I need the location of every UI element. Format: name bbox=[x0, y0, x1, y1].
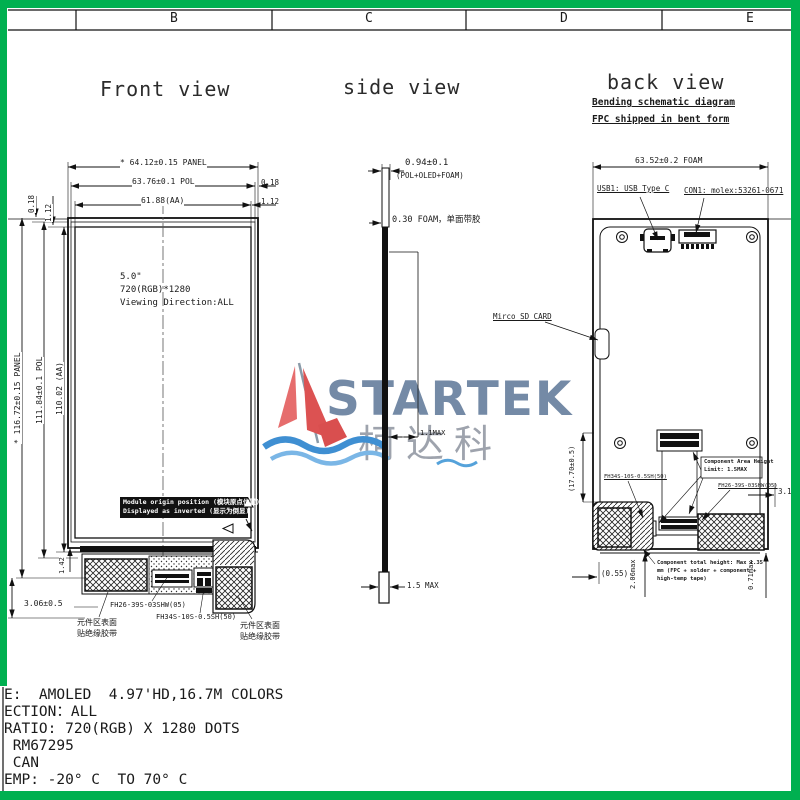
sd-card-label: Mirco SD CARD bbox=[493, 313, 552, 321]
sheet-border-bottom bbox=[0, 791, 800, 800]
component-area-note-line2: Limit: 1.5MAX bbox=[704, 467, 747, 473]
origin-note-line1: Module origin position (模块原点位置) bbox=[123, 499, 260, 506]
con1-connector-label: CON1: molex:53261-0671 bbox=[684, 187, 783, 195]
front-view-graphic bbox=[8, 162, 276, 619]
component-area-note-line1: Component Area Height bbox=[704, 459, 774, 465]
header-grid bbox=[8, 10, 792, 30]
front-dim-aa-width: 61.88(AA) bbox=[141, 197, 184, 206]
column-header-d: D bbox=[560, 12, 568, 26]
column-header-e: E bbox=[746, 12, 754, 26]
front-gap-right-aa: 1.12 bbox=[261, 198, 279, 206]
back-fh26-label: FH26-39S-03SHW(05) bbox=[718, 483, 778, 489]
side-view-title: side view bbox=[343, 76, 460, 98]
back-dim-side: (17.70±0.5) bbox=[569, 446, 576, 492]
back-view-graphic bbox=[545, 162, 775, 598]
side-dim-stack-sub: (POL+OLED+FOAM) bbox=[396, 172, 464, 180]
spec-line-ratio: RATIO: 720(RGB) X 1280 DOTS bbox=[4, 722, 240, 738]
tape-note-right-line1: 元件区表面 bbox=[240, 622, 280, 631]
back-dim-foam-width: 63.52±0.2 FOAM bbox=[635, 157, 702, 166]
front-dim-panel-width: * 64.12±0.15 PANEL bbox=[120, 159, 207, 168]
column-header-b: B bbox=[170, 12, 178, 26]
display-resolution-label: 720(RGB)*1280 bbox=[120, 284, 190, 297]
front-gap-right-pol: 0.18 bbox=[261, 179, 279, 187]
sheet-border-right bbox=[791, 0, 800, 800]
front-dim-pol-width: 63.76±0.1 POL bbox=[132, 178, 195, 187]
tape-note-left-line2: 贴绝缘胶带 bbox=[77, 630, 117, 639]
sheet-border-left bbox=[0, 0, 7, 686]
side-dim-stack: 0.94±0.1 bbox=[405, 159, 448, 169]
front-dim-tail: 3.06±0.5 bbox=[24, 600, 63, 609]
component-height-note-line1: Component total height: Max 1.35 bbox=[657, 560, 763, 566]
usb-connector-label: USB1: USB Type C bbox=[597, 185, 669, 193]
component-height-note-line2: mm (FPC + solder + component + bbox=[657, 568, 756, 574]
display-size-label: 5.0" bbox=[120, 271, 142, 284]
front-gap-left-pol: 0.18 bbox=[28, 195, 36, 213]
side-dim-mid-max: 1.1MAX bbox=[420, 430, 445, 438]
front-connector2-label: FH34S-10S-0.5SH(50) bbox=[156, 614, 236, 622]
front-dim-ledge: 1.42 bbox=[59, 557, 66, 574]
back-view-subtitle-bending: Bending schematic diagram bbox=[592, 98, 735, 108]
front-gap-left-aa: 1.12 bbox=[45, 204, 53, 222]
viewing-direction-label: Viewing Direction:ALL bbox=[120, 297, 234, 310]
back-fh34-label: FH34S-10S-0.5SH(50) bbox=[604, 474, 667, 480]
drawing-sheet: STARTEK 柯达科 bbox=[0, 0, 800, 800]
back-view-subtitle-fpc: FPC shipped in bent form bbox=[592, 115, 729, 125]
tape-note-left-line1: 元件区表面 bbox=[77, 619, 117, 628]
watermark-logo-graphic bbox=[264, 363, 477, 466]
spec-line-type: E: AMOLED 4.97'HD,16.7M COLORS bbox=[4, 688, 283, 704]
back-view-title: back view bbox=[607, 71, 724, 93]
column-header-c: C bbox=[365, 12, 373, 26]
sheet-border-top bbox=[0, 0, 800, 8]
back-dim-206max: 2.06max bbox=[630, 559, 637, 589]
side-view-graphic bbox=[361, 164, 418, 603]
front-dim-panel-height: * 116.72±0.15 PANEL bbox=[14, 352, 22, 444]
side-dim-bottom-max: 1.5 MAX bbox=[407, 582, 439, 590]
spec-line-temp: EMP: -20° C TO 70° C bbox=[4, 773, 187, 789]
origin-note-line2: Displayed as inverted (显示为倒显) bbox=[123, 508, 249, 515]
front-dim-aa-height: 110.02 (AA) bbox=[56, 362, 64, 415]
component-height-note-line3: high-temp tape) bbox=[657, 576, 707, 582]
side-foam-note: 0.30 FOAM，单面带胶 bbox=[392, 216, 481, 225]
spec-line-interface: CAN bbox=[4, 756, 39, 772]
back-dim-055: (0.55) bbox=[601, 570, 628, 578]
front-view-title: Front view bbox=[100, 78, 230, 100]
front-connector1-label: FH26-39S-03SHW(05) bbox=[110, 602, 186, 610]
front-dim-pol-height: 111.84±0.1 POL bbox=[36, 357, 44, 424]
spec-line-driver: RM67295 bbox=[4, 739, 74, 755]
tape-note-right-line2: 贴绝缘胶带 bbox=[240, 633, 280, 642]
spec-line-direction: ECTION：ALL bbox=[4, 705, 97, 721]
